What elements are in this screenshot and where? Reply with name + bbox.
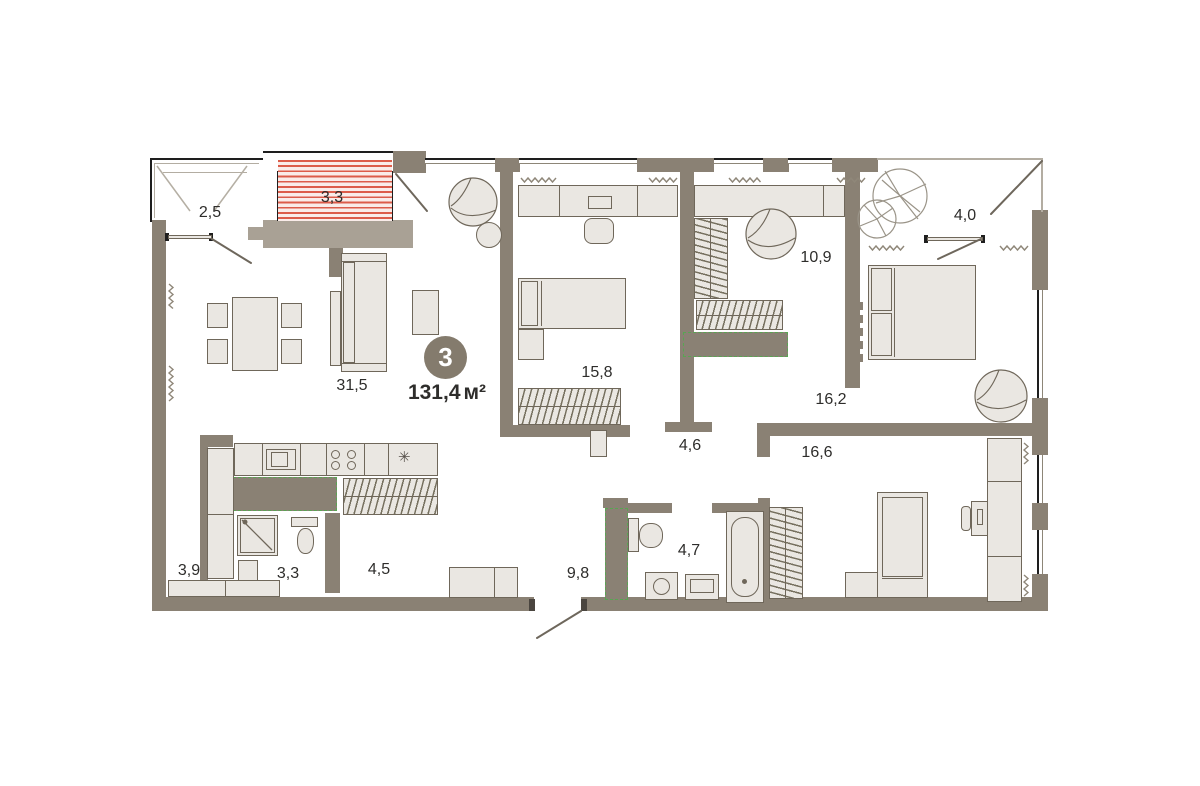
fridge-snowflake-icon: ✳ [398,450,416,468]
rooms-count-badge: 3 [424,336,467,379]
door-jamb [529,599,535,611]
bathtub-inner [731,517,759,597]
door-swing-balcony-left [212,239,251,263]
balcony-frame-line [163,172,247,173]
plant-icon [858,200,896,238]
bed-cabinet [845,572,878,598]
wall [500,172,513,433]
built-in-storage [233,477,337,511]
bed-pillow [871,268,892,311]
wall [393,151,426,173]
door-leaf [927,237,983,241]
room-area-label: 3,9 [161,560,217,582]
wall [325,513,340,593]
balcony-parapet [263,220,413,248]
room-area-label: 2,5 [182,202,238,224]
furniture-divider [343,496,438,497]
door-leaf [168,235,212,239]
furniture-divider [696,315,783,316]
door-swing-balcony-hatched [396,174,427,211]
desk-monitor [977,509,983,525]
balcony-frame-line [1041,160,1043,212]
wall [495,158,520,172]
radiator-zigzag [1000,246,1028,250]
entry-bench [449,567,518,598]
total-area-value: 131,4 [408,381,461,404]
window [1037,455,1043,503]
chair [281,303,302,328]
sofa-armrest [341,253,387,262]
furniture-divider [637,185,638,217]
room-area-label: 4,5 [351,559,407,581]
stove-burner [331,450,340,459]
furniture-divider [541,281,542,326]
furniture-divider [388,443,389,476]
furniture-divider [494,567,495,598]
wall [200,435,233,447]
radiator-zigzag [521,178,556,182]
window [714,158,763,164]
wall-dashed-post [855,315,863,323]
wall [832,158,878,172]
radiator-zigzag [869,246,904,250]
balcony-frame-line [877,158,1043,160]
desk-chair [584,218,614,244]
balcony-frame-line [150,158,263,160]
room-area-label: 4,7 [661,540,717,562]
room-area-label: 16,2 [803,389,859,411]
bed-pillow [521,281,538,326]
furniture-divider [326,443,327,476]
furniture-divider [987,556,1022,557]
wall-dashed-post [855,328,863,336]
toilet-bowl [297,528,314,554]
built-in-storage [683,332,788,357]
wall [757,436,770,457]
door-swing-bedroom-balcony [938,239,981,259]
sofa-chaise [330,291,341,366]
stove-burner [347,461,356,470]
wall [603,498,628,508]
clothes-rack-vertical [694,218,728,299]
furniture-divider [894,268,895,357]
bathtub-drain [742,579,747,584]
shower-tray-inner [240,518,275,553]
furniture-divider [518,406,621,407]
window [1037,530,1043,574]
built-in-storage [605,508,628,600]
wall [665,422,712,432]
side-table [412,290,439,335]
window-sash-balcony-right [991,161,1042,214]
furniture-divider [225,580,226,597]
bed-mattress [882,497,923,577]
balcony-parapet [248,227,264,240]
bed-drawer [518,329,544,360]
room-area-label: 9,8 [550,563,606,585]
window [788,158,832,164]
chair [207,303,228,328]
armchair [449,178,497,226]
wall-dashed-post [855,341,863,349]
balcony-frame-line [154,163,259,164]
furniture-divider [207,514,234,515]
stove-burner [347,450,356,459]
room-area-label: 10,9 [788,247,844,269]
wall [680,172,694,430]
wall [152,220,166,611]
kitchen-sink-basin [271,452,288,467]
radiator-zigzag [169,366,173,401]
desk-printer [588,196,612,209]
radiator-zigzag [1024,443,1028,464]
wall [1032,503,1048,530]
plant-icon [873,169,927,223]
stove-burner [331,461,340,470]
furniture-divider [987,481,1022,482]
furniture-divider [882,578,923,579]
armchair [975,370,1027,422]
wall [1032,210,1048,290]
room-area-label: 15,8 [569,362,625,384]
wall-dashed-post [855,354,863,362]
room-area-label: 16,6 [789,442,845,464]
chair [281,339,302,364]
total-area-unit: м² [464,381,487,404]
sofa-armrest [341,363,387,372]
clothes-rack-vertical [769,507,803,599]
washing-machine-drum [653,578,670,595]
radiator-zigzag [649,178,677,182]
wardrobe [987,438,1022,602]
wall [637,158,714,172]
radiator-zigzag [729,178,761,182]
desk-chair [961,506,971,531]
furniture-divider [364,443,365,476]
wall [1032,574,1048,611]
room-area-label: 3,3 [304,187,360,209]
toilet-cistern [628,518,639,552]
sofa-back [343,262,355,363]
radiator-zigzag [169,284,173,309]
balcony-frame-line [154,163,155,218]
furniture-divider [262,443,263,476]
ottoman [476,222,502,248]
wall [627,503,672,513]
furniture-divider [823,185,824,217]
wall-panel [590,430,607,457]
furniture-divider [559,185,560,217]
bed-pillow [871,313,892,356]
furniture-divider [300,443,301,476]
chair [207,339,228,364]
furniture-divider [785,507,786,599]
balcony-frame-line [263,151,393,153]
wall [763,158,789,172]
total-area-label: 131,4м² [396,381,498,405]
room-area-label: 4,0 [937,205,993,227]
room-area-label: 3,3 [260,563,316,585]
wall-dashed-post [855,302,863,310]
wall [152,597,534,611]
furniture-divider [710,218,711,299]
toilet-bowl [639,523,663,548]
floor-plan: 3 131,4м² ✳2,53,331,515,810,94,016,24,61… [0,0,1200,786]
door-swing-entrance [537,611,581,638]
window [519,158,637,164]
toilet-cistern [291,517,318,527]
dining-table [232,297,278,371]
wall [500,425,630,437]
balcony-frame-line [150,158,152,222]
bathroom-sink-basin [690,579,714,593]
door-jamb [581,599,587,611]
wall [757,423,1035,436]
radiator-zigzag [1024,575,1028,596]
window [1037,290,1043,398]
room-area-label: 4,6 [662,435,718,457]
window [425,158,495,164]
room-area-label: 31,5 [324,375,380,397]
